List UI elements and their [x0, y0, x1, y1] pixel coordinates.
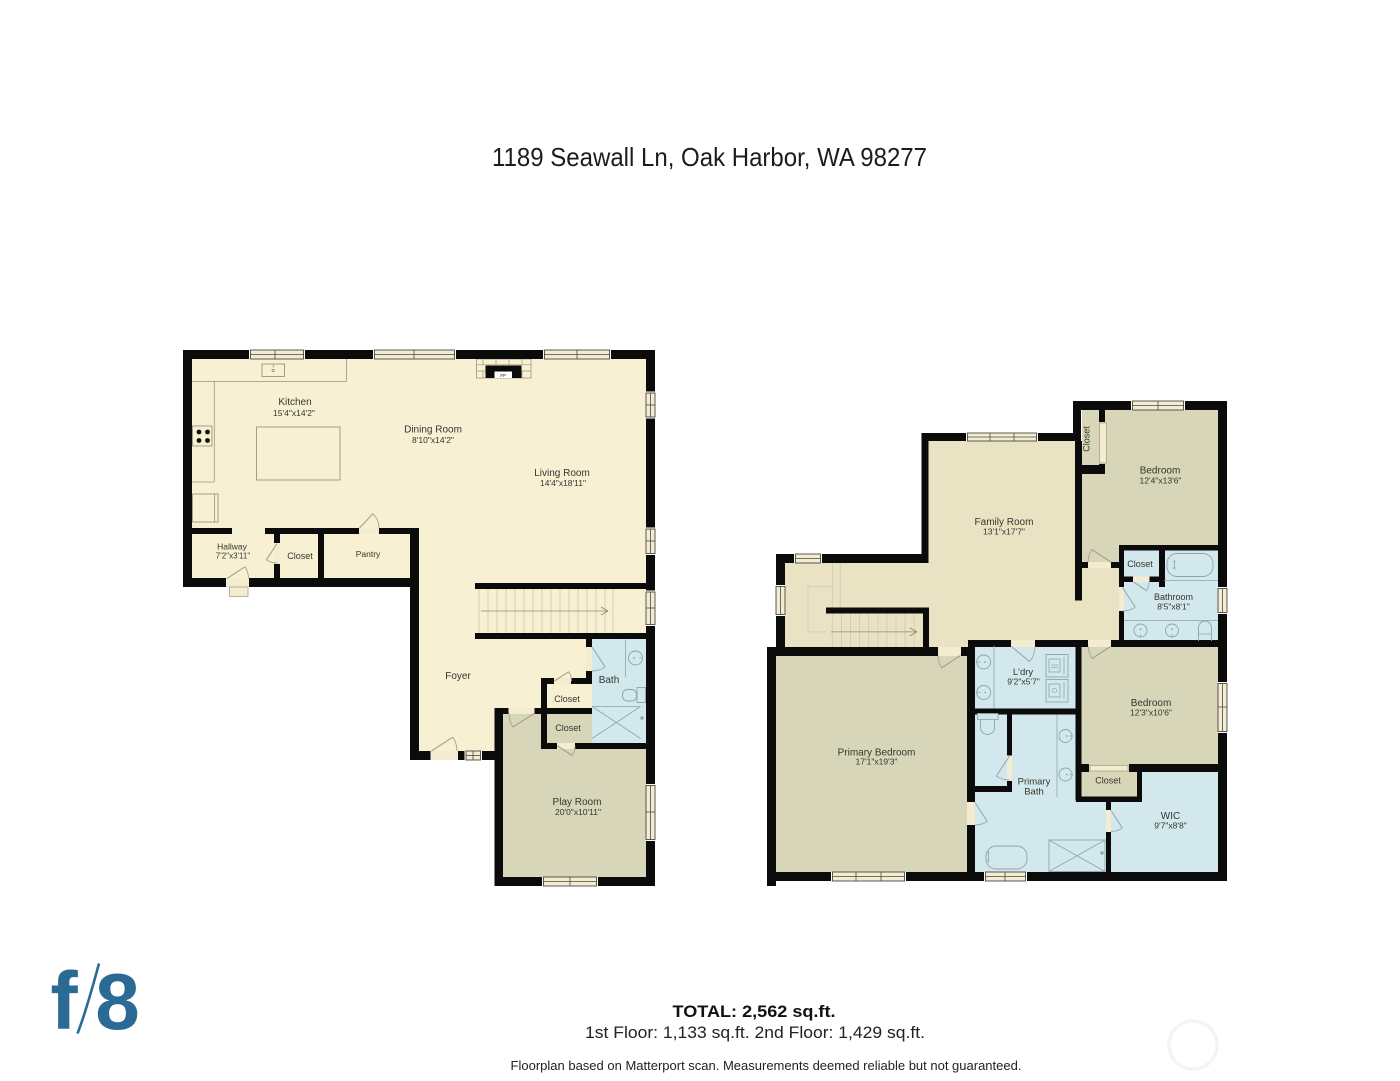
- svg-text:Closet: Closet: [554, 694, 580, 704]
- svg-text:12'3"x10'6": 12'3"x10'6": [1130, 708, 1172, 718]
- svg-text:1189 Seawall Ln, Oak Harbor, W: 1189 Seawall Ln, Oak Harbor, WA 98277: [492, 142, 927, 172]
- svg-text:15'4"x14'2": 15'4"x14'2": [273, 408, 315, 418]
- svg-text:Bath: Bath: [599, 675, 620, 686]
- svg-text:20'0"x10'11": 20'0"x10'11": [555, 807, 601, 817]
- svg-text:Hallway: Hallway: [217, 542, 248, 552]
- svg-text:9'2"x5'7": 9'2"x5'7": [1007, 677, 1039, 687]
- svg-text:Closet: Closet: [1127, 559, 1153, 569]
- svg-text:9'7"x8'8": 9'7"x8'8": [1154, 821, 1186, 831]
- svg-text:Dining Room: Dining Room: [404, 425, 462, 436]
- svg-text:8: 8: [95, 957, 140, 1046]
- svg-text:8'10"x14'2": 8'10"x14'2": [412, 435, 454, 445]
- svg-text:14'4"x18'11": 14'4"x18'11": [540, 478, 586, 488]
- svg-text:Foyer: Foyer: [445, 671, 471, 682]
- svg-text:8'5"x8'1": 8'5"x8'1": [1157, 602, 1189, 612]
- svg-text:1st Floor: 1,133 sq.ft. 2nd Fl: 1st Floor: 1,133 sq.ft. 2nd Floor: 1,429…: [585, 1024, 925, 1042]
- svg-text:f: f: [50, 956, 78, 1047]
- svg-text:Bath: Bath: [1024, 787, 1044, 798]
- svg-text:Bathroom: Bathroom: [1154, 592, 1193, 602]
- svg-text:17'1"x19'3": 17'1"x19'3": [856, 757, 898, 767]
- svg-text:Closet: Closet: [555, 723, 581, 733]
- svg-text:Floorplan based on Matterport: Floorplan based on Matterport scan. Meas…: [511, 1058, 1022, 1073]
- svg-text:FP: FP: [500, 373, 506, 378]
- svg-text:7'2"x3'11": 7'2"x3'11": [216, 552, 251, 561]
- svg-text:TOTAL: 2,562 sq.ft.: TOTAL: 2,562 sq.ft.: [673, 1003, 836, 1021]
- svg-text:Closet: Closet: [1082, 426, 1092, 452]
- svg-text:Pantry: Pantry: [356, 549, 381, 559]
- svg-text:13'1"x17'7": 13'1"x17'7": [983, 527, 1025, 537]
- svg-text:Closet: Closet: [1095, 776, 1121, 786]
- svg-text:Closet: Closet: [287, 551, 313, 561]
- svg-text:12'4"x13'6": 12'4"x13'6": [1140, 476, 1182, 486]
- svg-text:Kitchen: Kitchen: [278, 397, 311, 408]
